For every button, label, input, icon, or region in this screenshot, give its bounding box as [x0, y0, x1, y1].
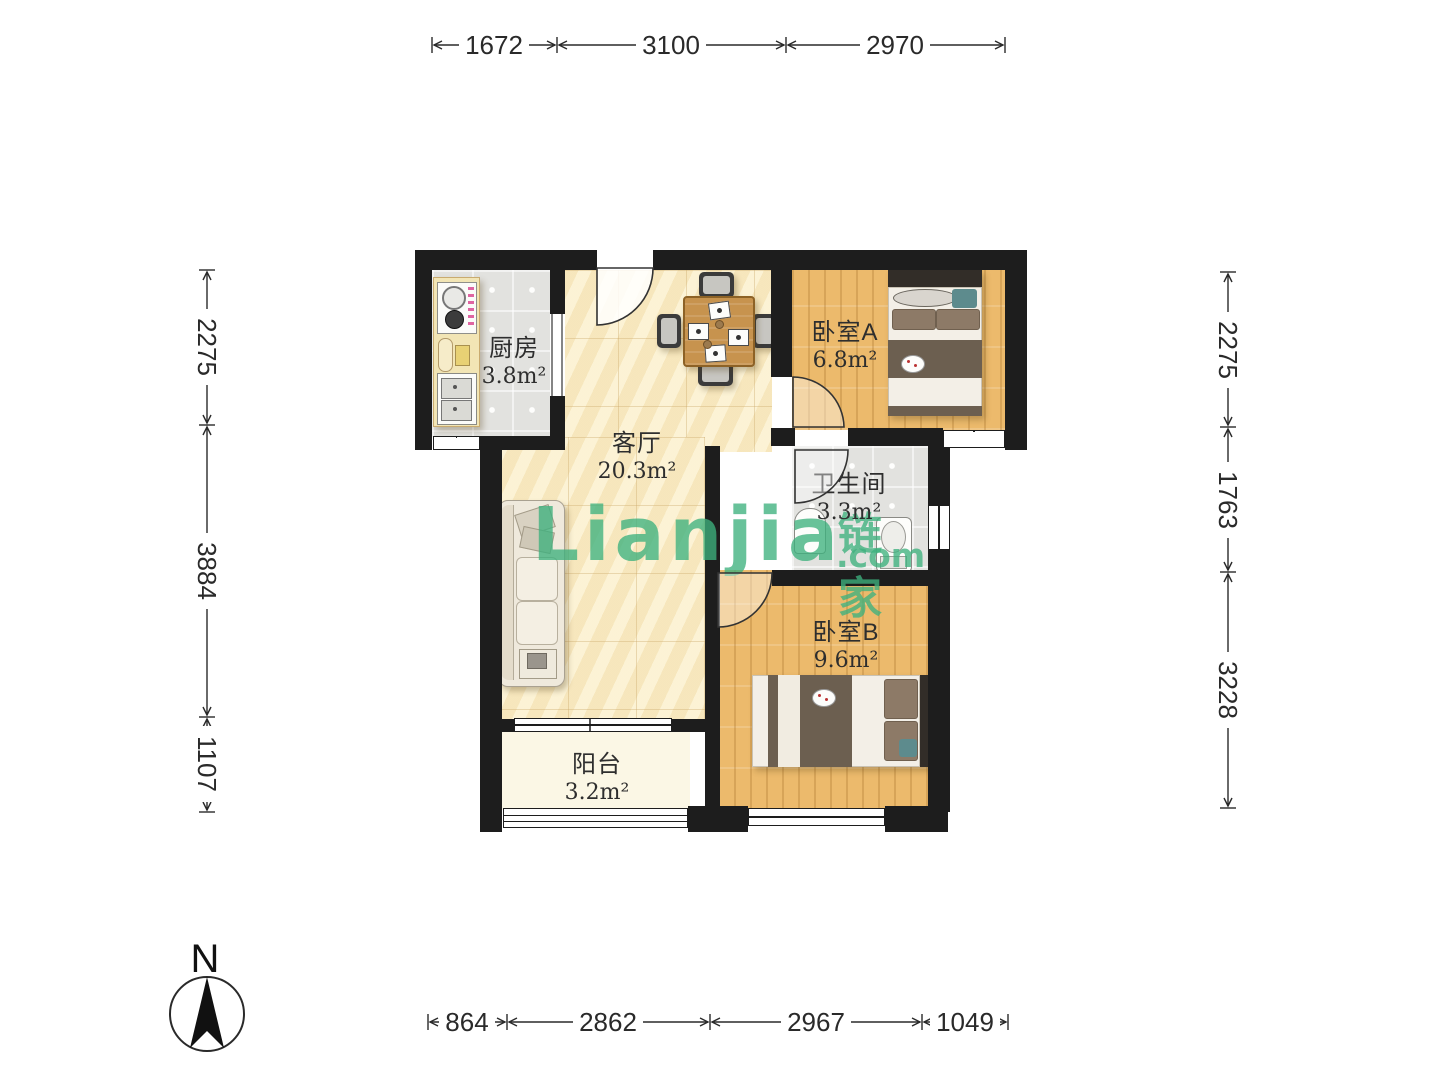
dim-value: 3228	[1213, 661, 1243, 719]
wall-segment	[772, 570, 950, 586]
stove	[437, 282, 477, 334]
wall-segment	[928, 446, 950, 505]
room-name: 厨房	[482, 328, 547, 363]
room-area: 3.2m²	[565, 780, 630, 805]
north-arrow-icon	[190, 977, 224, 1048]
dining-chair	[657, 314, 681, 348]
stove-knobs	[468, 287, 474, 327]
floor-plan-canvas: Lianjia 链家 .com 厨房 3.8m² 客厅 20.3m² 卧室A 6…	[0, 0, 1440, 1080]
room-name: 卧室A	[811, 312, 878, 347]
room-label-bedroom-b: 卧室B 9.6m²	[812, 612, 879, 673]
wall-segment	[500, 719, 514, 732]
wall-segment	[550, 268, 565, 314]
dimension-col-right	[1220, 272, 1236, 808]
sofa-cushion	[516, 601, 558, 645]
bed-oval-deco	[901, 355, 925, 373]
dimension-labels-right: 2275 1763 3228	[1213, 312, 1243, 728]
room-label-balcony: 阳台 3.2m²	[565, 744, 630, 805]
kitchen-appliance	[438, 338, 453, 372]
room-area: 9.6m²	[812, 648, 879, 673]
room-area: 3.3m²	[812, 500, 887, 525]
placemat	[688, 323, 709, 340]
room-name: 卫生间	[812, 464, 887, 499]
room-area: 3.8m²	[482, 364, 547, 389]
room-area: 20.3m²	[598, 459, 677, 484]
sofa-cushion	[516, 557, 558, 601]
sofa	[498, 500, 565, 687]
wall-segment	[771, 428, 795, 446]
north-compass: N	[170, 937, 244, 1051]
pillow	[892, 309, 936, 330]
burner-icon	[445, 310, 464, 329]
dimension-labels-bottom: 864 2862 2967 1049	[439, 1007, 1000, 1037]
dining-chair	[699, 272, 734, 298]
wall-segment	[928, 550, 950, 812]
dim-value: 864	[445, 1007, 488, 1037]
burner-icon	[442, 286, 466, 310]
wall-segment	[653, 250, 1027, 270]
wall-segment	[705, 446, 720, 832]
kitchen-sink	[437, 373, 477, 425]
dim-value: 2967	[787, 1007, 845, 1037]
dimension-overlay: 1672 3100 2970 864 2862 2967 1049	[0, 0, 1440, 1080]
wall-segment	[550, 396, 565, 450]
dim-value: 1107	[192, 736, 222, 792]
bedroom-b-window	[748, 808, 885, 826]
dim-value: 3884	[192, 542, 222, 600]
dim-value: 1049	[936, 1007, 994, 1037]
dimension-row-bottom	[428, 1014, 1008, 1030]
room-label-kitchen: 厨房 3.8m²	[482, 328, 547, 389]
dimension-row-top	[432, 37, 1005, 53]
bedroom-a-window	[943, 430, 1005, 448]
balcony-window	[503, 808, 688, 828]
bed-a	[888, 270, 982, 416]
north-label: N	[191, 937, 220, 981]
room-label-bedroom-a: 卧室A 6.8m²	[811, 312, 878, 373]
headboard	[888, 270, 982, 287]
kitchen-window	[433, 436, 480, 450]
room-area: 6.8m²	[811, 348, 878, 373]
dim-value: 2275	[192, 318, 222, 376]
dining-table	[683, 296, 755, 367]
wall-segment	[771, 268, 792, 377]
wall-segment	[688, 806, 748, 832]
pillow	[936, 309, 980, 330]
dimension-col-left	[199, 270, 215, 812]
dim-value: 1763	[1213, 471, 1243, 529]
balcony-sliding-door	[514, 718, 672, 732]
room-name: 阳台	[565, 744, 630, 779]
pillow	[884, 679, 918, 719]
room-label-living: 客厅 20.3m²	[598, 423, 677, 484]
dim-value: 3100	[642, 30, 700, 60]
sofa-pillow	[519, 526, 555, 554]
wall-segment	[415, 250, 432, 450]
dim-value: 2862	[579, 1007, 637, 1037]
room-name: 客厅	[598, 423, 677, 458]
teal-pillow	[952, 289, 977, 308]
placemat	[708, 301, 731, 321]
bed-tray	[893, 289, 957, 307]
kitchen-counter	[433, 277, 480, 427]
bed-b	[752, 675, 932, 767]
dim-value: 1672	[465, 30, 523, 60]
dim-value: 2275	[1213, 321, 1243, 379]
dimension-labels-left: 2275 3884 1107	[192, 309, 222, 802]
room-name: 卧室B	[812, 612, 879, 647]
dim-value: 2970	[866, 30, 924, 60]
toilet	[876, 517, 912, 573]
bathroom-window	[928, 505, 950, 550]
room-label-bathroom: 卫生间 3.3m²	[812, 464, 887, 525]
cup-icon	[715, 320, 724, 329]
wall-segment	[1005, 250, 1027, 450]
teal-pillow	[899, 739, 917, 757]
wall-segment	[848, 428, 943, 446]
compass-circle	[170, 977, 244, 1051]
placemat	[728, 329, 749, 346]
dimension-labels-top: 1672 3100 2970	[459, 30, 930, 60]
cup-icon	[703, 340, 712, 349]
wall-segment	[415, 250, 597, 270]
bed-oval-deco	[812, 689, 836, 707]
wall-segment	[480, 437, 502, 832]
wall-segment	[672, 719, 708, 732]
kitchen-appliance-small	[455, 345, 470, 366]
